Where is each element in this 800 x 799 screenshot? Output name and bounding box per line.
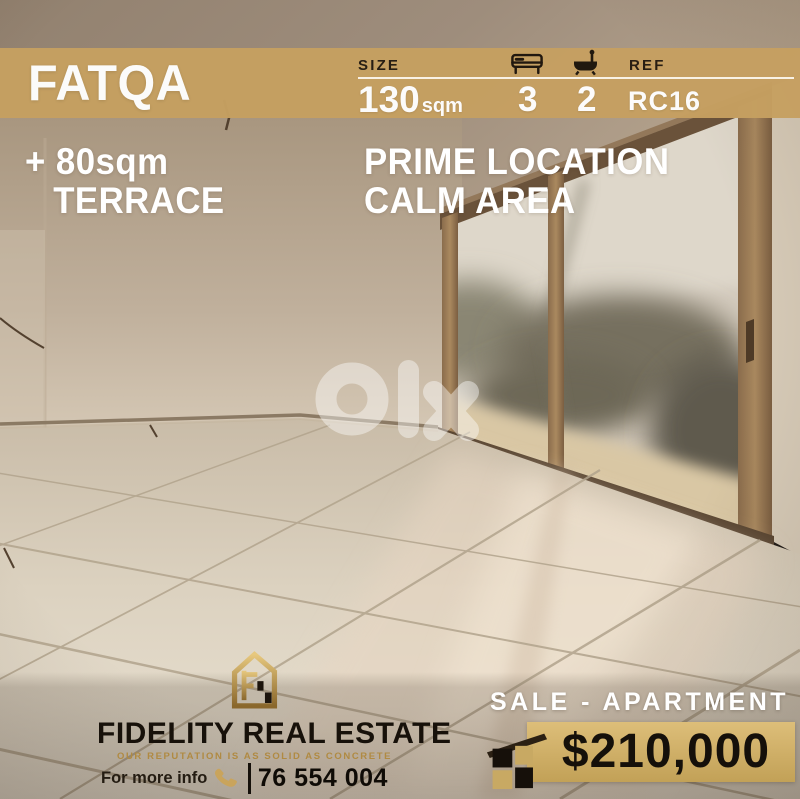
- price-tag-band: $210,000: [527, 722, 795, 782]
- top-info-band: FATQA SIZE REF 130sqm 3 2 RC16: [0, 48, 800, 118]
- bedroom-count: 3: [518, 82, 537, 117]
- sale-type-label: SALE - APARTMENT: [490, 688, 789, 717]
- size-label: SIZE: [358, 57, 400, 74]
- bed-icon: [511, 53, 543, 75]
- size-unit: sqm: [422, 95, 463, 117]
- ref-label: REF: [629, 57, 666, 74]
- real-estate-listing-ad: FATQA SIZE REF 130sqm 3 2 RC16 + 80sqm: [0, 0, 800, 799]
- olx-watermark-icon: [310, 352, 486, 447]
- terrace-line1: + 80sqm: [25, 142, 225, 181]
- terrace-note: + 80sqm TERRACE: [25, 142, 225, 220]
- bathroom-count: 2: [577, 82, 596, 117]
- house-grid-icon: [486, 727, 548, 791]
- highlight-line1: PRIME LOCATION: [364, 142, 669, 181]
- highlight-line2: CALM AREA: [364, 181, 669, 220]
- agency-name: FIDELITY REAL ESTATE: [97, 717, 412, 751]
- size-value: 130sqm: [358, 81, 463, 118]
- bath-icon: [572, 49, 599, 76]
- phone-number: 76 554 004: [258, 764, 388, 793]
- house-outline-icon: [226, 649, 283, 719]
- price-value: $210,000: [552, 728, 770, 776]
- ref-value: RC16: [628, 88, 701, 115]
- contact-divider: [248, 763, 251, 794]
- highlight-note: PRIME LOCATION CALM AREA: [364, 142, 669, 220]
- location-title: FATQA: [28, 48, 191, 118]
- contact-label: For more info: [101, 769, 207, 788]
- contact-row: For more info 76 554 004: [101, 762, 388, 794]
- band-divider-line: [358, 77, 794, 79]
- phone-icon: [214, 765, 241, 792]
- agency-tagline: OUR REPUTATION IS AS SOLID AS CONCRETE: [97, 751, 412, 762]
- terrace-line2: TERRACE: [53, 181, 224, 220]
